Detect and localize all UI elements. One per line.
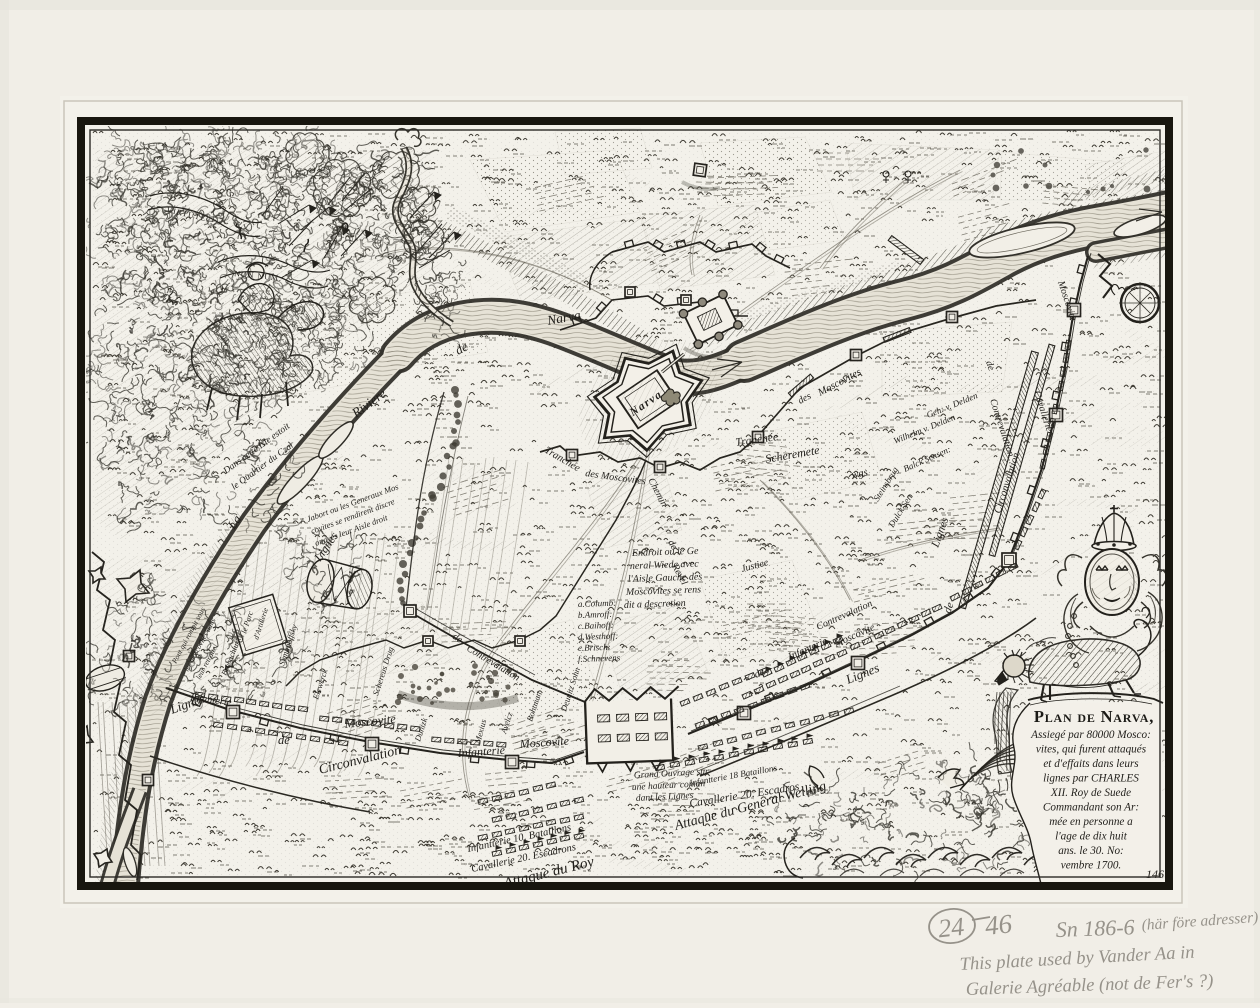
- svg-text:mée en personne a: mée en personne a: [1049, 816, 1133, 828]
- svg-text:a.Columb:: a.Columb:: [578, 598, 617, 609]
- svg-text:vembre 1700.: vembre 1700.: [1061, 860, 1121, 872]
- svg-text:et d'effaits dans leurs: et d'effaits dans leurs: [1043, 758, 1139, 770]
- svg-text:f.Schnevens: f.Schnevens: [578, 653, 621, 664]
- svg-text:lignes par CHARLES: lignes par CHARLES: [1043, 773, 1139, 785]
- svg-text:dit a descretion: dit a descretion: [624, 598, 686, 611]
- svg-text:b.Amroff:: b.Amroff:: [578, 609, 613, 620]
- svg-text:de: de: [278, 733, 290, 747]
- svg-text:ans. le 30. No:: ans. le 30. No:: [1058, 845, 1124, 857]
- svg-text:l'age de dix huit: l'age de dix huit: [1055, 831, 1128, 843]
- svg-text:46: 46: [983, 908, 1013, 941]
- svg-text:146: 146: [1146, 867, 1164, 881]
- svg-text:Sn 186-6: Sn 186-6: [1055, 914, 1135, 942]
- svg-text:24: 24: [937, 912, 966, 944]
- svg-text:Plan de Narva,: Plan de Narva,: [1034, 707, 1154, 726]
- svg-text:d.Westhoff:: d.Westhoff:: [578, 631, 619, 642]
- svg-text:c.Baihoff:: c.Baihoff:: [578, 620, 614, 631]
- svg-text:Commandant son Ar:: Commandant son Ar:: [1043, 802, 1139, 814]
- svg-text:Assiegé par 80000 Mosco:: Assiegé par 80000 Mosco:: [1030, 729, 1151, 741]
- svg-text:XII. Roy de Suede: XII. Roy de Suede: [1050, 787, 1131, 799]
- svg-text:vites, qui furent attaqués: vites, qui furent attaqués: [1036, 744, 1147, 756]
- svg-text:e.Brisch:: e.Brisch:: [578, 642, 611, 653]
